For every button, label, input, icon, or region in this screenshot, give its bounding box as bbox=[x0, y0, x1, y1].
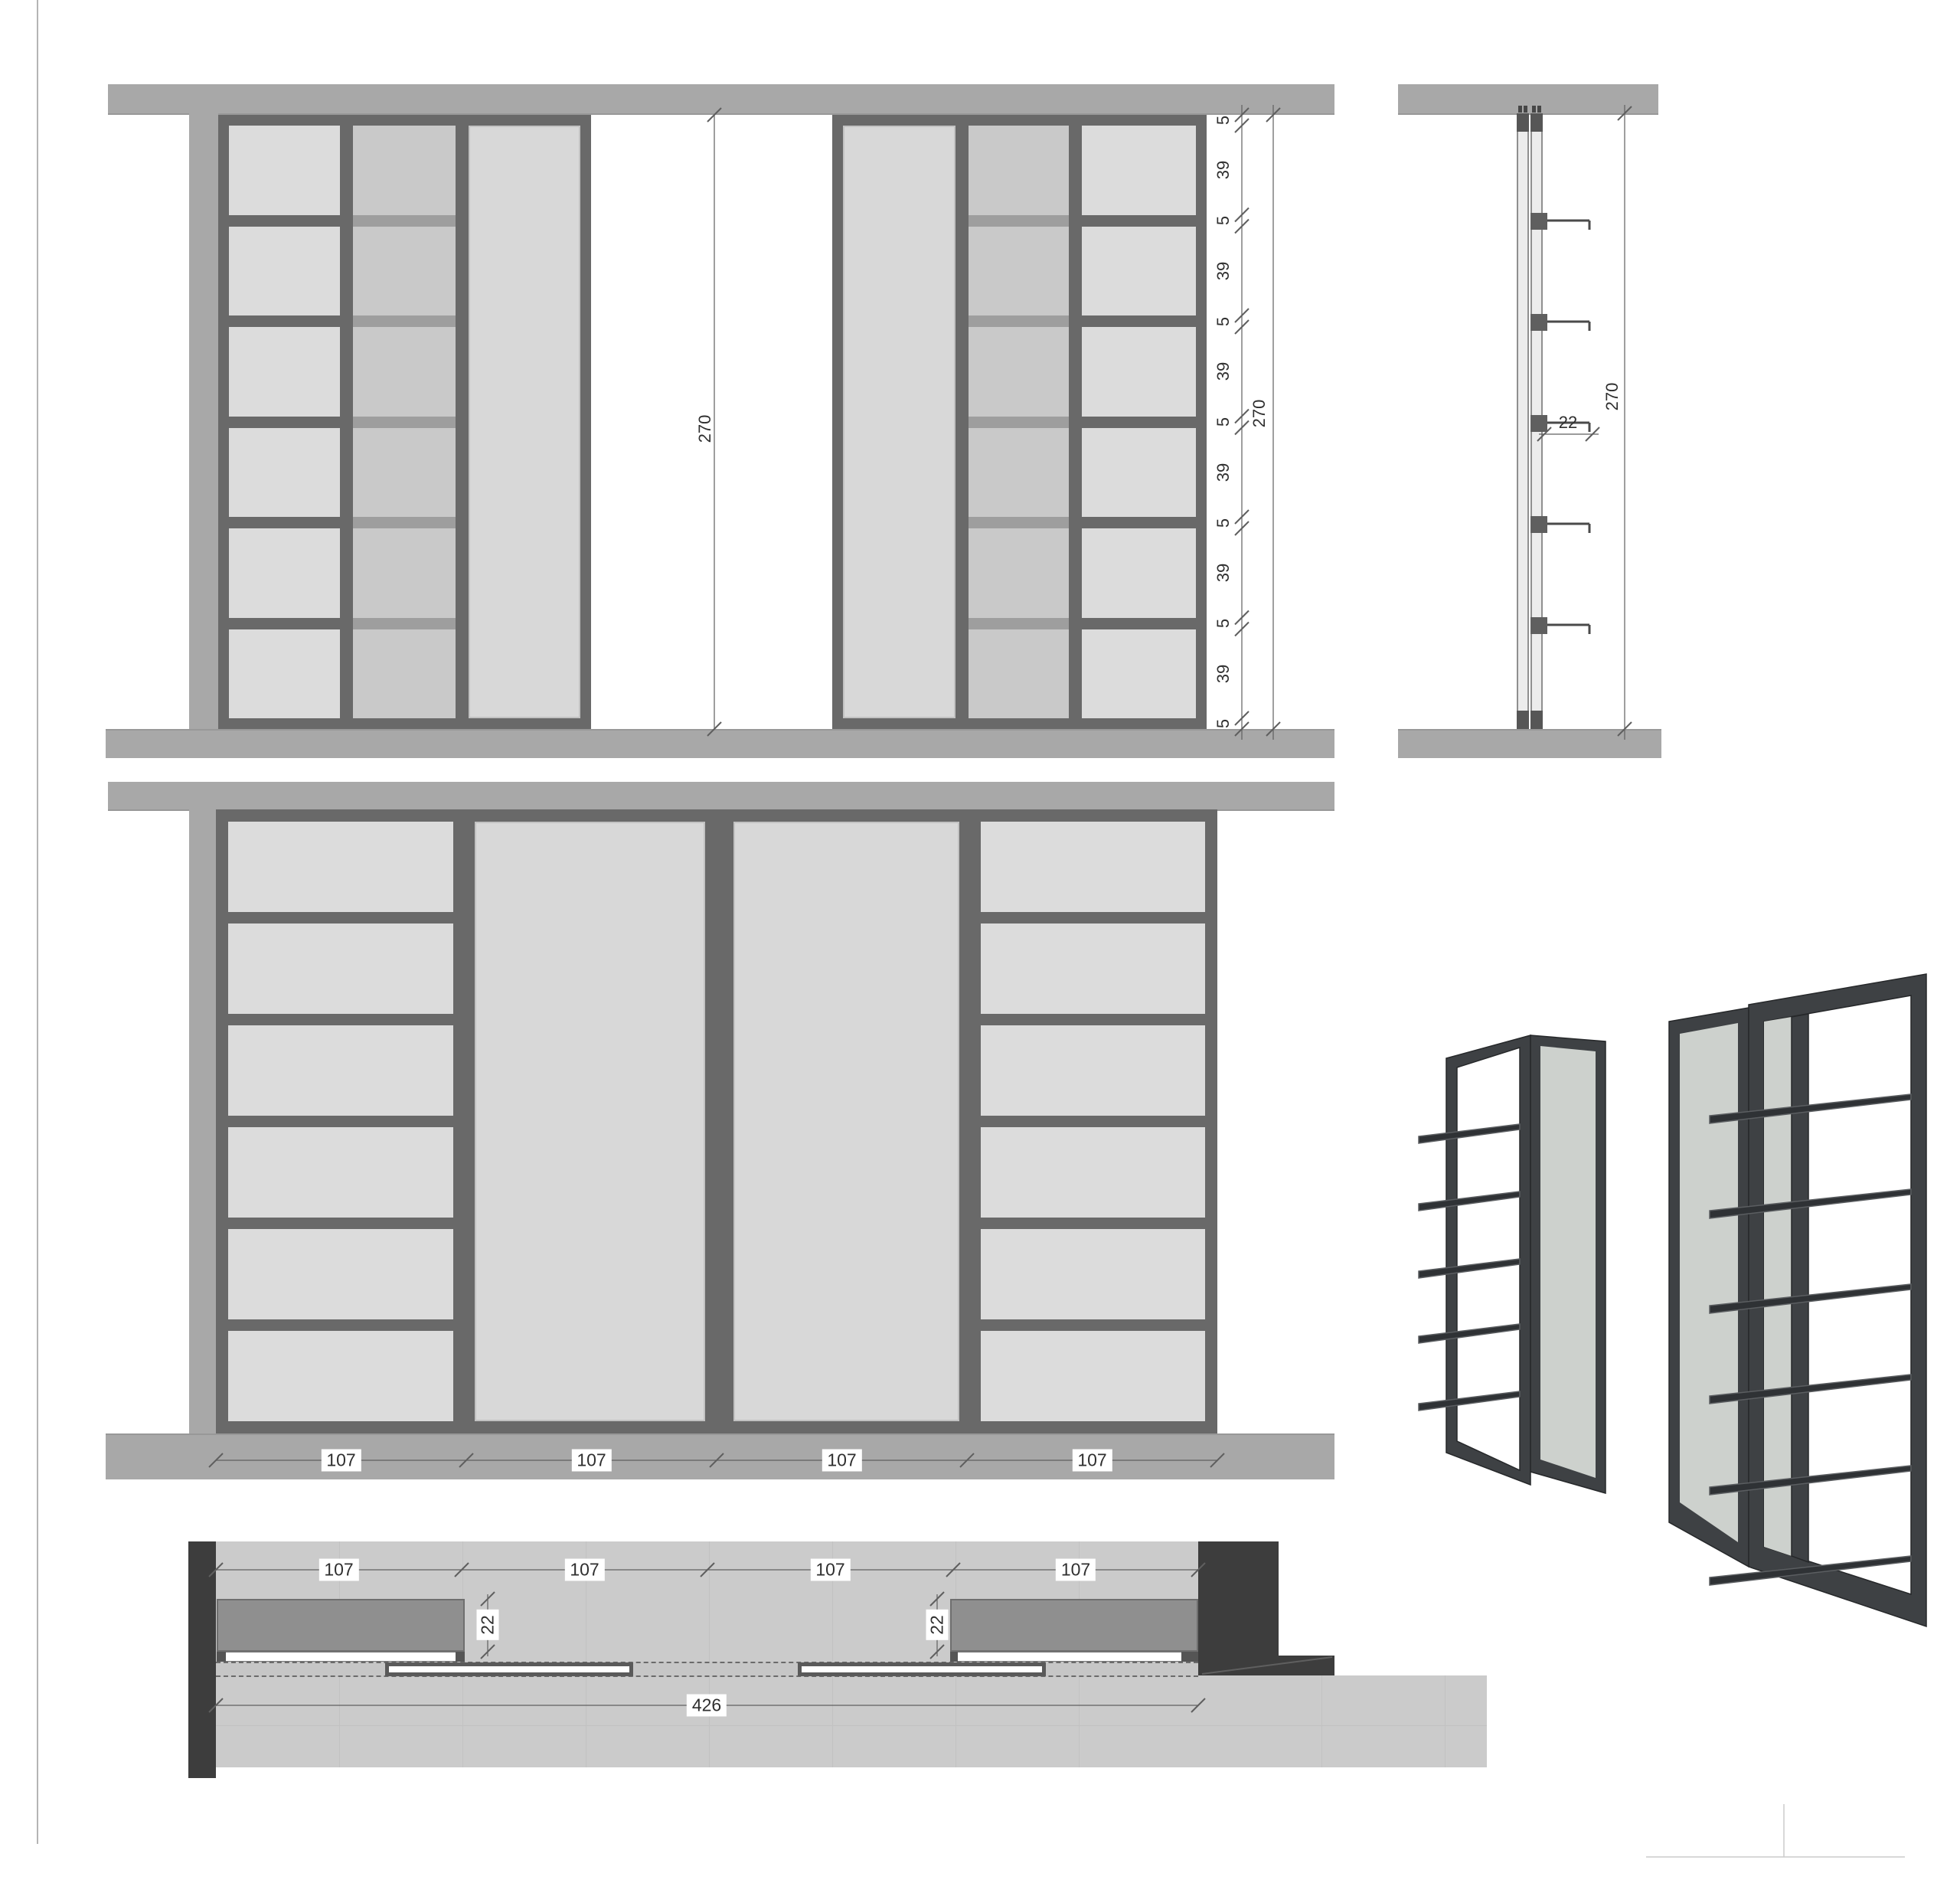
plan-width-dimension: 107 bbox=[810, 1559, 850, 1581]
height-chain-label: 5 bbox=[1215, 316, 1232, 325]
plan-width-dimension: 107 bbox=[564, 1559, 604, 1581]
height-chain-label: 5 bbox=[1215, 116, 1232, 125]
height-chain-label: 5 bbox=[1215, 518, 1232, 527]
height-chain-label: 39 bbox=[1215, 665, 1232, 683]
height-chain-label: 5 bbox=[1215, 619, 1232, 628]
column-width-dimension: 107 bbox=[571, 1450, 611, 1472]
plan-depth-dimension: 22 bbox=[477, 1610, 499, 1640]
height-chain-label: 39 bbox=[1215, 362, 1232, 381]
column-width-dimension: 107 bbox=[822, 1450, 861, 1472]
height-chain-label: 5 bbox=[1215, 417, 1232, 427]
height-chain-label: 39 bbox=[1215, 463, 1232, 482]
height-chain-label: 39 bbox=[1215, 564, 1232, 582]
height-chain-label: 39 bbox=[1215, 262, 1232, 280]
plan-total-width-dimension: 426 bbox=[687, 1695, 727, 1717]
total-height-dimension: 270 bbox=[1251, 400, 1268, 428]
height-chain-label: 5 bbox=[1215, 719, 1232, 728]
plan-width-dimension: 107 bbox=[1056, 1559, 1096, 1581]
height-chain-label: 5 bbox=[1215, 216, 1232, 225]
drawing-canvas: 2705395395395395395395270222701071071071… bbox=[0, 0, 1960, 1896]
plan-depth-dimension: 22 bbox=[926, 1610, 949, 1640]
gap-height-dimension: 270 bbox=[697, 415, 714, 443]
height-chain-label: 39 bbox=[1215, 161, 1232, 179]
shelf-depth-dimension: 22 bbox=[1559, 414, 1577, 431]
side-height-dimension: 270 bbox=[1604, 383, 1621, 411]
column-width-dimension: 107 bbox=[321, 1450, 361, 1472]
column-width-dimension: 107 bbox=[1072, 1450, 1112, 1472]
dimension-labels: 2705395395395395395395270222701071071071… bbox=[0, 0, 1960, 1896]
plan-width-dimension: 107 bbox=[318, 1559, 358, 1581]
